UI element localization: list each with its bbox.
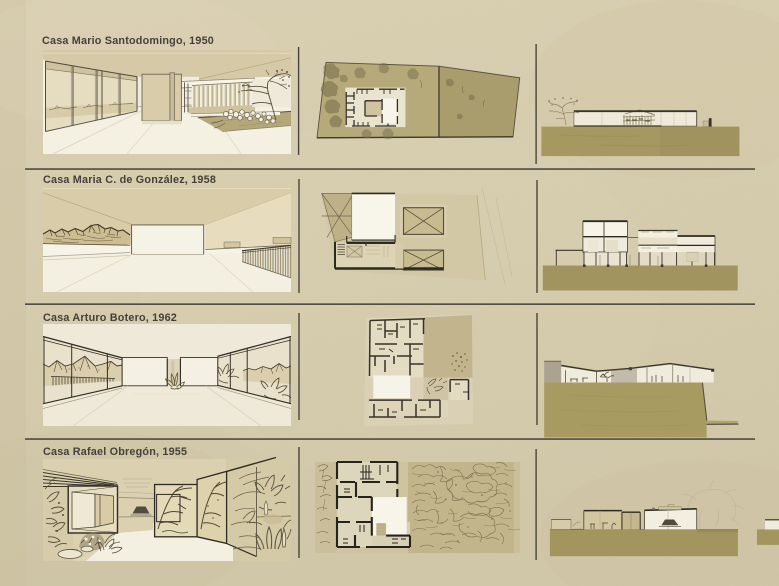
svg-text:Casa Maria C. de González, 195: Casa Maria C. de González, 1958 bbox=[43, 174, 216, 186]
svg-text:Casa Arturo Botero, 1962: Casa Arturo Botero, 1962 bbox=[43, 312, 177, 324]
svg-text:Casa Mario Santodomingo, 1950: Casa Mario Santodomingo, 1950 bbox=[42, 35, 214, 47]
svg-text:Casa Rafael Obregón, 1955: Casa Rafael Obregón, 1955 bbox=[43, 446, 187, 458]
